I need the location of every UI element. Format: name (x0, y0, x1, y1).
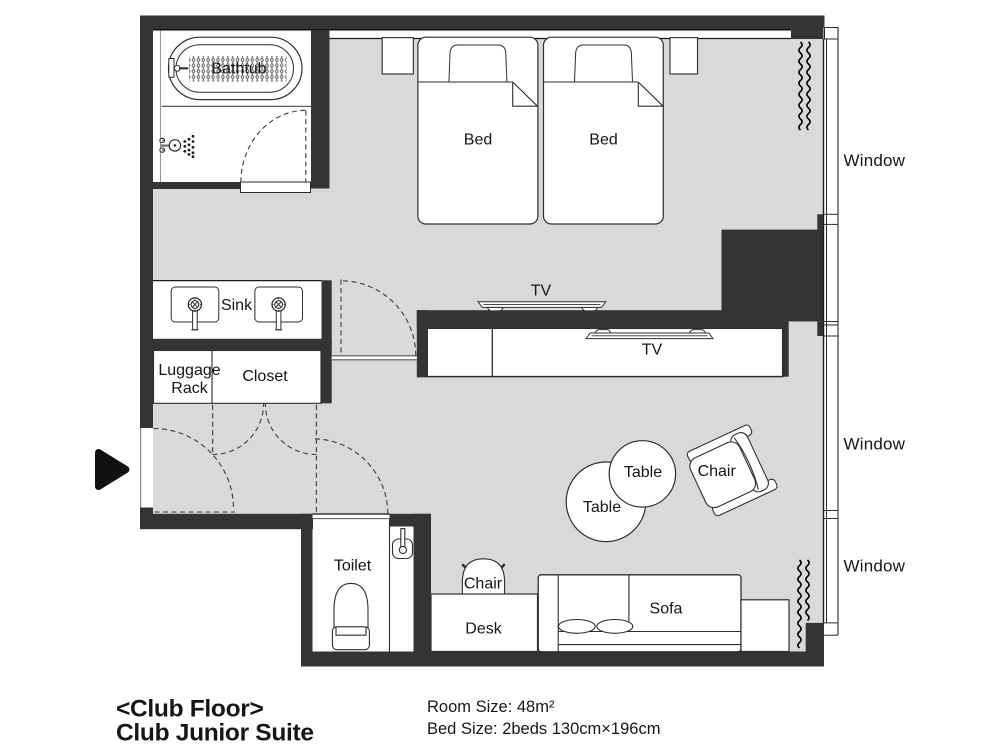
svg-text:Rack: Rack (171, 380, 208, 397)
svg-text:<Club Floor>: <Club Floor> (116, 696, 264, 723)
svg-text:Table: Table (583, 499, 621, 516)
svg-text:TV: TV (642, 342, 663, 359)
svg-text:Chair: Chair (464, 576, 503, 593)
svg-text:Closet: Closet (242, 368, 288, 385)
svg-text:Table: Table (624, 464, 662, 481)
svg-text:Bed Size: 2beds 130cm×196cm: Bed Size: 2beds 130cm×196cm (427, 720, 660, 738)
svg-text:Window: Window (844, 557, 906, 576)
svg-text:Bed: Bed (589, 132, 617, 149)
svg-text:Club Junior Suite: Club Junior Suite (116, 720, 314, 747)
svg-text:Room Size: 48m²: Room Size: 48m² (427, 698, 555, 716)
svg-text:Sofa: Sofa (650, 601, 683, 618)
svg-text:Desk: Desk (465, 621, 502, 638)
svg-text:Window: Window (844, 151, 906, 170)
svg-text:Sink: Sink (221, 297, 253, 314)
svg-text:Bed: Bed (464, 132, 492, 149)
svg-text:TV: TV (531, 283, 552, 300)
svg-text:Chair: Chair (698, 463, 737, 480)
svg-text:Toilet: Toilet (334, 558, 372, 575)
svg-text:Luggage: Luggage (158, 362, 220, 379)
svg-text:Window: Window (844, 435, 906, 454)
svg-text:Bathtub: Bathtub (211, 61, 266, 78)
